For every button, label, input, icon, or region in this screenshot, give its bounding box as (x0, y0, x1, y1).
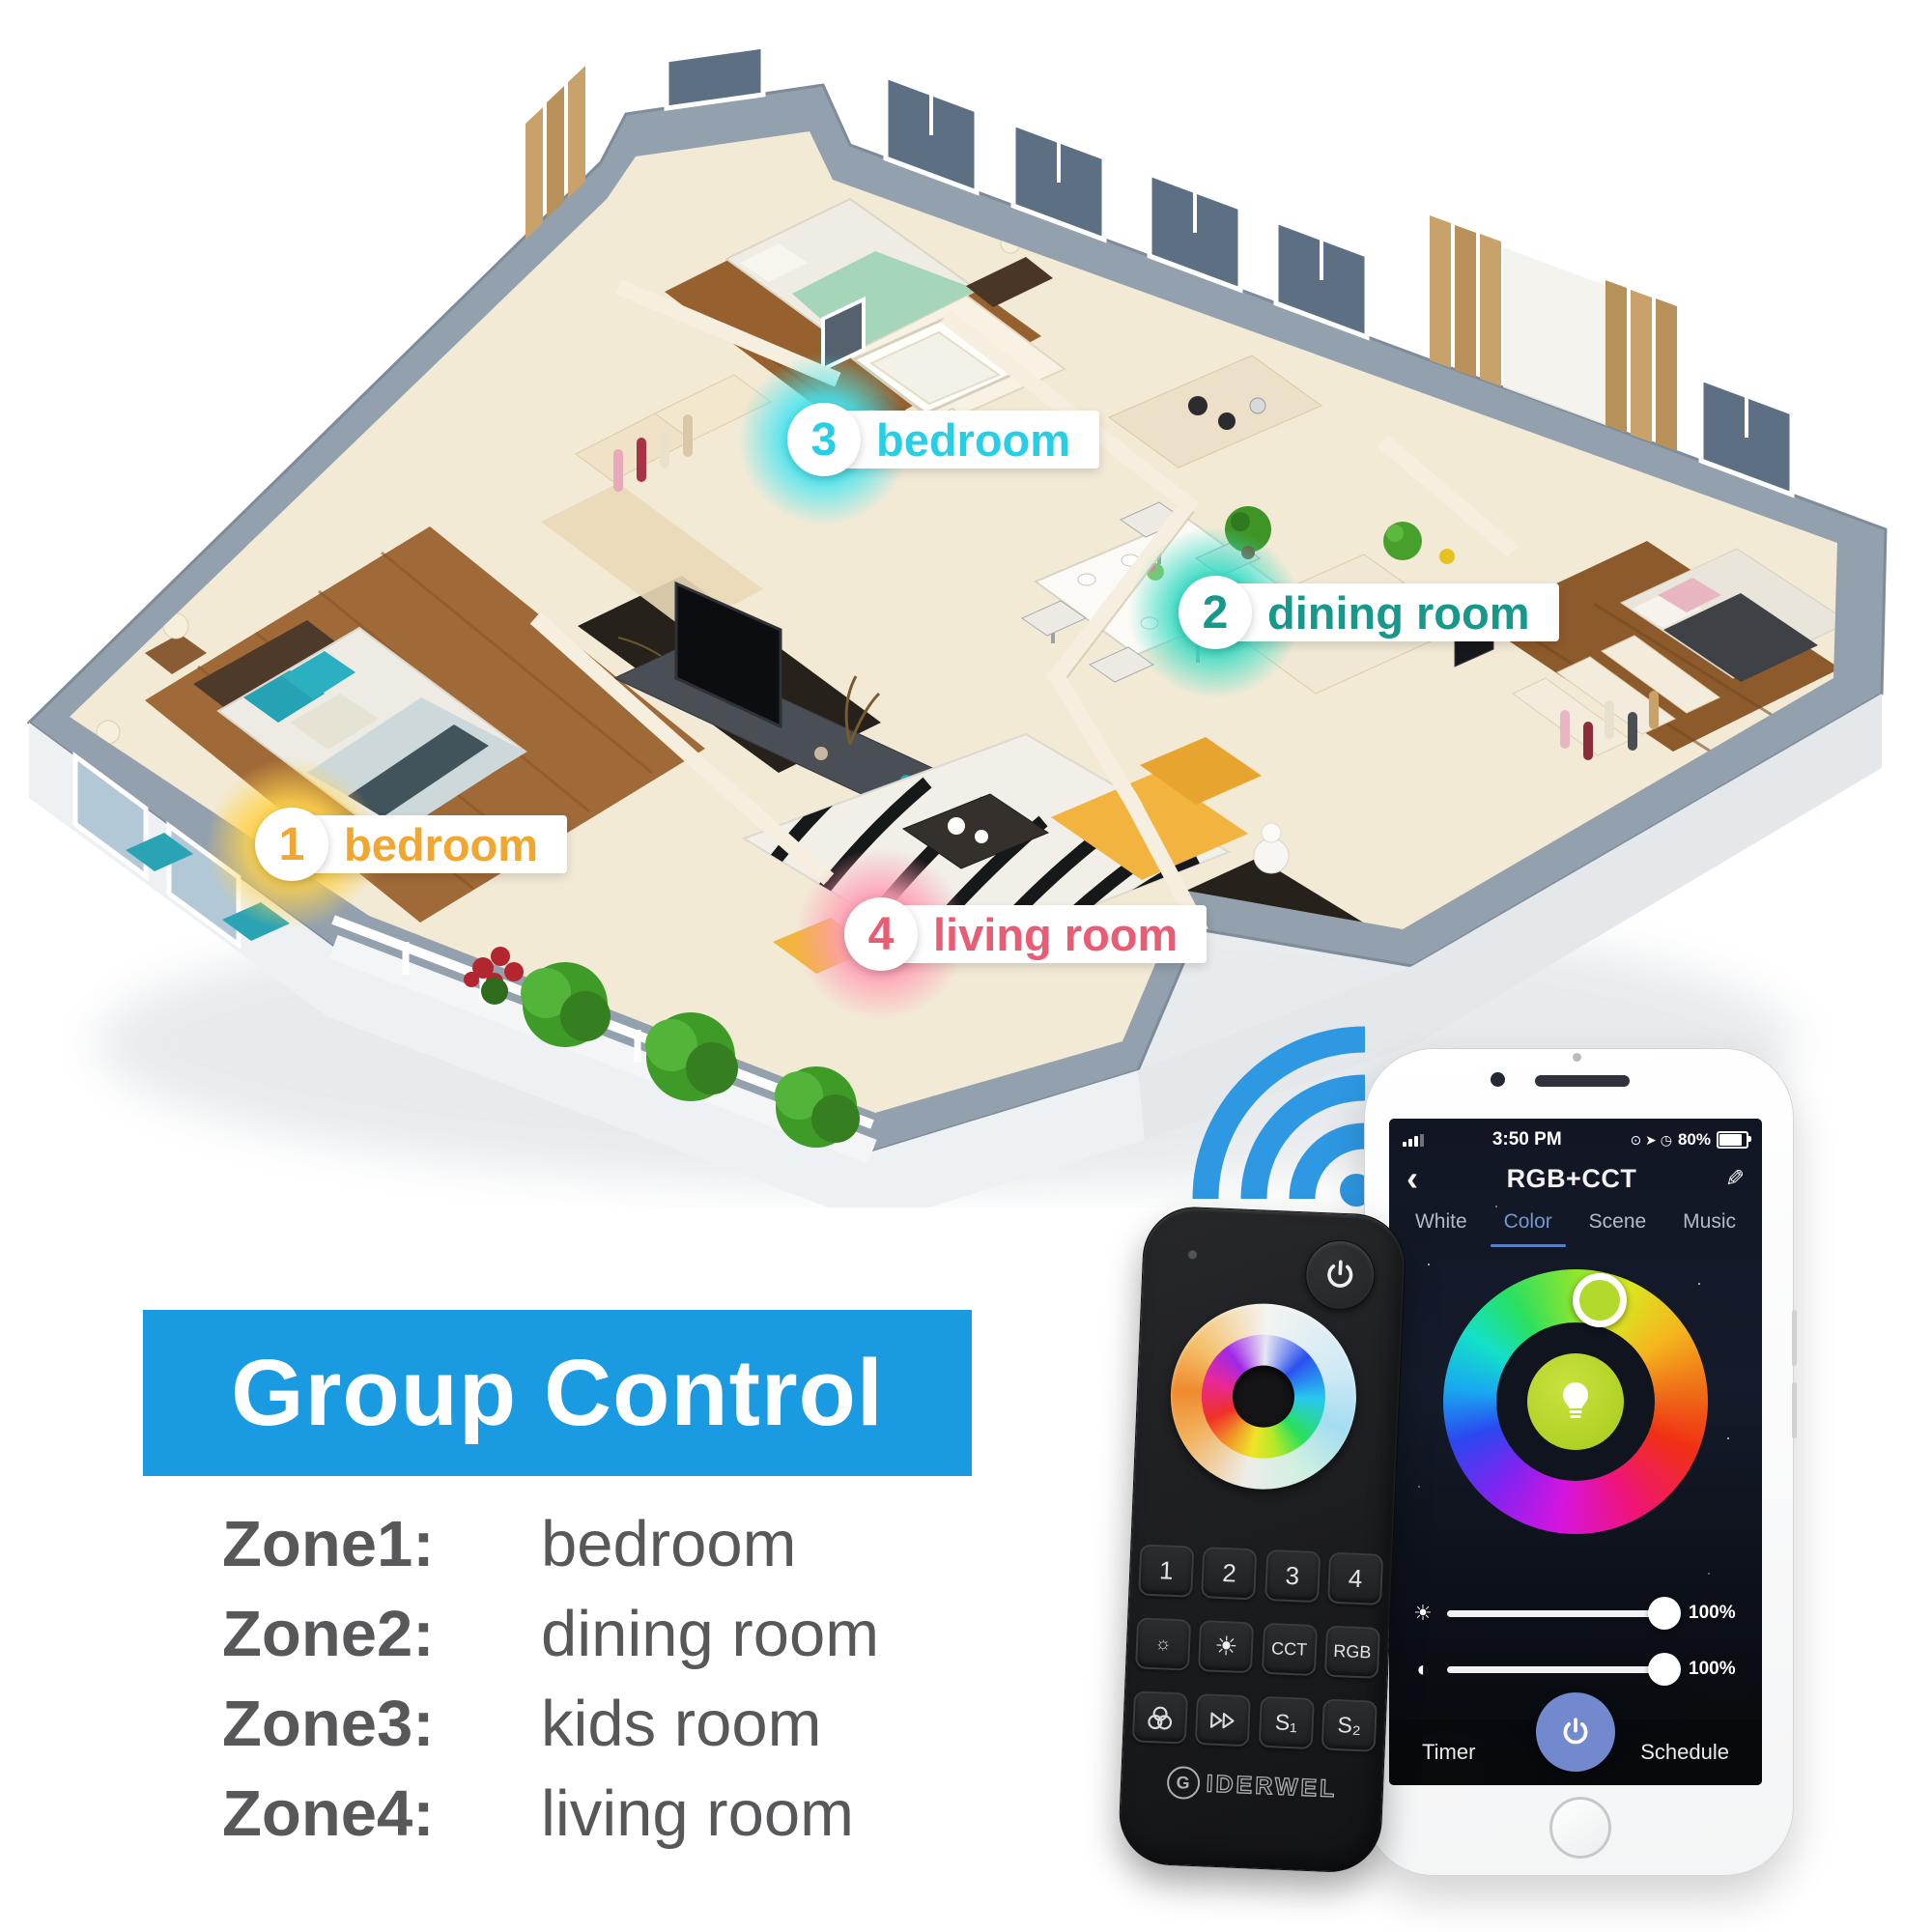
color-wheel-hole (1496, 1322, 1655, 1481)
brightness-up-button[interactable]: ☀ (1198, 1620, 1254, 1673)
phone-side-button[interactable] (1792, 1382, 1797, 1438)
phone-side-button[interactable] (1792, 1310, 1797, 1366)
remote-color-ring[interactable] (1199, 1332, 1327, 1461)
battery-icon (1717, 1131, 1748, 1149)
zone-2-badge: 2 (1179, 576, 1252, 649)
tab-white[interactable]: White (1415, 1210, 1467, 1239)
zone-list-row: Zone4: living room (222, 1769, 879, 1859)
zone4-label: Zone4: (222, 1776, 541, 1851)
page: 1 bedroom 2 dining room 3 bedroom 4 livi… (0, 0, 1932, 1932)
page-title: RGB+CCT (1507, 1164, 1637, 1194)
remote-control: 1 2 3 4 ☼ ☀ CCT RGB (1118, 1205, 1407, 1874)
zone1-room: bedroom (541, 1507, 796, 1581)
remote-color-wheel[interactable] (1167, 1300, 1360, 1493)
edit-icon[interactable]: ✎ (1725, 1165, 1745, 1193)
mode-tabs: White Color Scene Music (1389, 1202, 1762, 1248)
app-nav-bar: ‹ RGB+CCT ✎ (1389, 1155, 1762, 1202)
zone2-label: Zone2: (222, 1597, 541, 1671)
floorplan-illustration (0, 0, 1932, 1207)
status-icons: ⊙ ➤ ◷ (1631, 1132, 1672, 1149)
zone-3-text: bedroom (820, 411, 1099, 469)
cct-button[interactable]: CCT (1262, 1623, 1318, 1676)
home-button[interactable] (1549, 1797, 1611, 1859)
zone1-label: Zone1: (222, 1507, 541, 1581)
selected-color-preview (1527, 1353, 1624, 1450)
brightness-slider[interactable] (1447, 1610, 1675, 1617)
zone-list-row: Zone2: dining room (222, 1589, 879, 1679)
tab-music[interactable]: Music (1683, 1210, 1736, 1239)
remote-zone-2-button[interactable]: 2 (1201, 1547, 1257, 1600)
remote-wheel-center (1232, 1364, 1296, 1429)
zone-list: Zone1: bedroom Zone2: dining room Zone3:… (222, 1499, 879, 1859)
zone-4-badge: 4 (844, 897, 918, 971)
tab-scene[interactable]: Scene (1589, 1210, 1647, 1239)
remote-zone-1-button[interactable]: 1 (1138, 1544, 1194, 1597)
scene-1-button[interactable]: S₁ (1258, 1696, 1314, 1749)
zone3-label: Zone3: (222, 1687, 541, 1761)
zone4-room: living room (541, 1776, 854, 1851)
group-control-banner: Group Control (143, 1310, 972, 1476)
remote-zone-3-button[interactable]: 3 (1264, 1549, 1321, 1603)
remote-power-button[interactable] (1304, 1238, 1377, 1311)
zone2-room: dining room (541, 1597, 879, 1671)
smartphone: 3:50 PM ⊙ ➤ ◷ 80% ‹ RGB+CCT ✎ White Colo… (1364, 1048, 1794, 1876)
app-bottom-bar: Timer Schedule (1389, 1719, 1762, 1785)
phone-camera (1491, 1072, 1505, 1087)
zone-1-text: bedroom (288, 815, 567, 873)
signal-icon (1403, 1134, 1424, 1147)
zone3-room: kids room (541, 1687, 821, 1761)
saturation-knob[interactable] (1648, 1653, 1681, 1686)
brightness-knob[interactable] (1648, 1597, 1681, 1630)
phone-speaker (1535, 1075, 1630, 1087)
remote-keypad: 1 2 3 4 ☼ ☀ CCT RGB (1131, 1544, 1383, 1774)
tab-color[interactable]: Color (1504, 1210, 1552, 1239)
color-cycle-button[interactable] (1132, 1690, 1188, 1744)
color-wheel-selector-handle[interactable] (1573, 1273, 1627, 1327)
zone-list-row: Zone3: kids room (222, 1679, 879, 1769)
brightness-down-button[interactable]: ☼ (1135, 1617, 1191, 1670)
power-icon (1322, 1257, 1358, 1293)
scene-2-button[interactable]: S₂ (1321, 1698, 1378, 1751)
remote-zone-4-button[interactable]: 4 (1327, 1552, 1383, 1605)
zone-4-text: living room (877, 905, 1207, 963)
speed-icon (1207, 1709, 1239, 1731)
zone-2-text: dining room (1211, 583, 1559, 641)
zone-label-4-living-room: 4 living room (844, 897, 1207, 971)
speed-button[interactable] (1195, 1693, 1251, 1747)
battery-percent: 80% (1678, 1130, 1711, 1150)
brand-g-icon: G (1166, 1766, 1200, 1800)
zone-1-badge: 1 (255, 808, 328, 881)
timer-button[interactable]: Timer (1422, 1740, 1475, 1765)
zone-label-2-dining-room: 2 dining room (1179, 576, 1559, 649)
status-bar: 3:50 PM ⊙ ➤ ◷ 80% (1389, 1119, 1762, 1155)
saturation-slider[interactable] (1447, 1666, 1675, 1673)
status-time: 3:50 PM (1492, 1129, 1562, 1151)
app-power-button[interactable] (1536, 1692, 1615, 1772)
color-wheel-area (1389, 1269, 1762, 1578)
phone-sensor (1573, 1053, 1581, 1062)
remote-led-indicator (1188, 1250, 1197, 1259)
rgb-button[interactable]: RGB (1324, 1626, 1380, 1679)
brand-text: IDERWEL (1206, 1770, 1338, 1804)
power-icon (1559, 1716, 1592, 1748)
banner-title: Group Control (231, 1339, 884, 1447)
bulb-icon (1557, 1379, 1594, 1424)
back-button[interactable]: ‹ (1406, 1161, 1418, 1196)
zone-label-1-bedroom: 1 bedroom (255, 808, 567, 881)
zone-3-badge: 3 (787, 403, 861, 476)
zone-label-3-bedroom: 3 bedroom (787, 403, 1099, 476)
zone-list-row: Zone1: bedroom (222, 1499, 879, 1589)
wifi-icon (1177, 1010, 1384, 1218)
app-screen: 3:50 PM ⊙ ➤ ◷ 80% ‹ RGB+CCT ✎ White Colo… (1389, 1119, 1762, 1785)
color-cycle-icon (1146, 1704, 1174, 1730)
schedule-button[interactable]: Schedule (1640, 1740, 1729, 1765)
